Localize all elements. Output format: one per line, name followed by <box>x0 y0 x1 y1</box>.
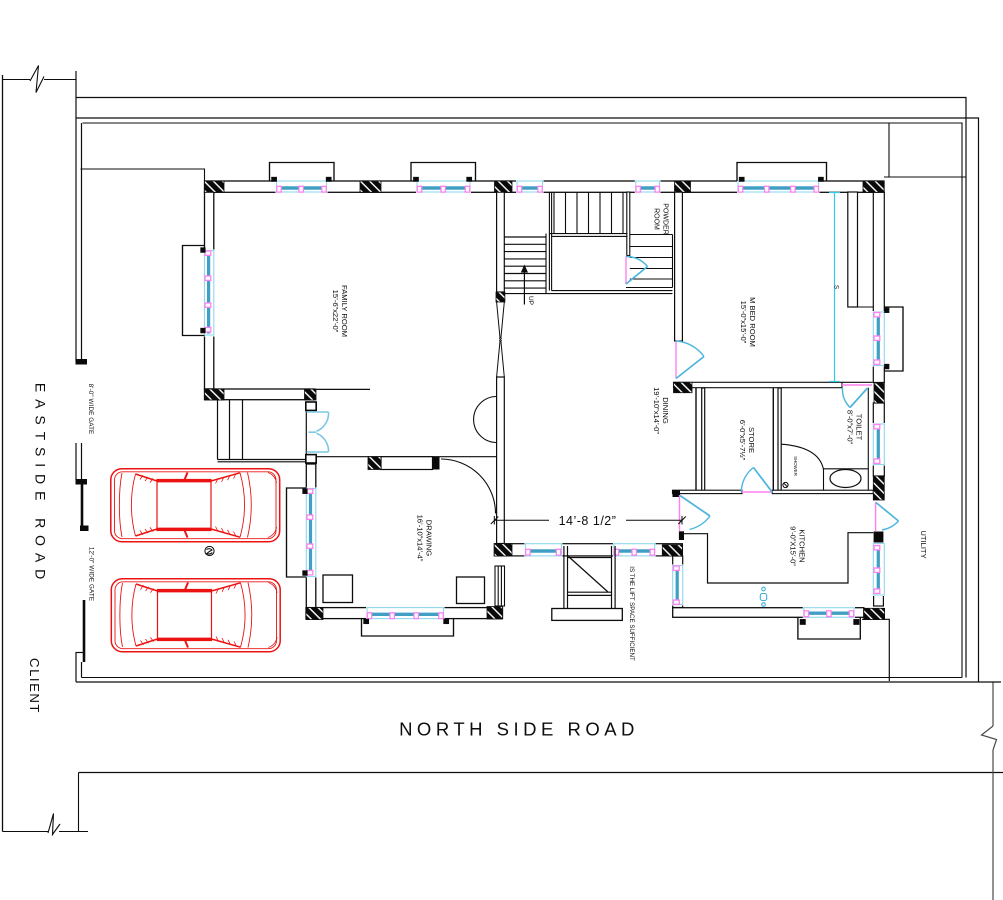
svg-text:14’-8 1/2”: 14’-8 1/2” <box>559 514 617 528</box>
svg-text:12'-0" WIDE GATE: 12'-0" WIDE GATE <box>88 547 95 601</box>
svg-text:TOILET8’-0”x7’-0”: TOILET8’-0”x7’-0” <box>846 410 864 445</box>
svg-text:STORE6’-0”x5’-7½”: STORE6’-0”x5’-7½” <box>738 420 756 461</box>
svg-text:POWDERROOM: POWDERROOM <box>653 203 669 235</box>
svg-text:M BED ROOM15’-0”x15’-0”: M BED ROOM15’-0”x15’-0” <box>739 297 757 347</box>
svg-text:8'-0" WIDE GATE: 8'-0" WIDE GATE <box>87 384 94 435</box>
svg-text:UTILITY: UTILITY <box>919 530 928 558</box>
svg-text:IS THE LIFT SPACE SUFFICIENT: IS THE LIFT SPACE SUFFICIENT <box>628 566 635 661</box>
svg-text:DRAWING16’-10”x14’-4”: DRAWING16’-10”x14’-4” <box>416 515 434 562</box>
svg-text:SHOWER: SHOWER <box>793 456 798 476</box>
svg-text:S: S <box>833 285 839 289</box>
svg-text:DINING19’-10”x14’-0”: DINING19’-10”x14’-0” <box>652 387 670 434</box>
svg-text:EASTSIDE ROAD: EASTSIDE ROAD <box>33 383 49 586</box>
svg-text:KITCHEN9’-0”X15’-0”: KITCHEN9’-0”X15’-0” <box>789 526 807 566</box>
svg-text:FAMILY ROOM15’-6”x22’-0”: FAMILY ROOM15’-6”x22’-0” <box>331 285 349 337</box>
svg-text:NORTH SIDE ROAD: NORTH SIDE ROAD <box>399 719 639 740</box>
svg-text:CLIENT: CLIENT <box>27 658 42 714</box>
svg-text:UP: UP <box>527 296 534 305</box>
